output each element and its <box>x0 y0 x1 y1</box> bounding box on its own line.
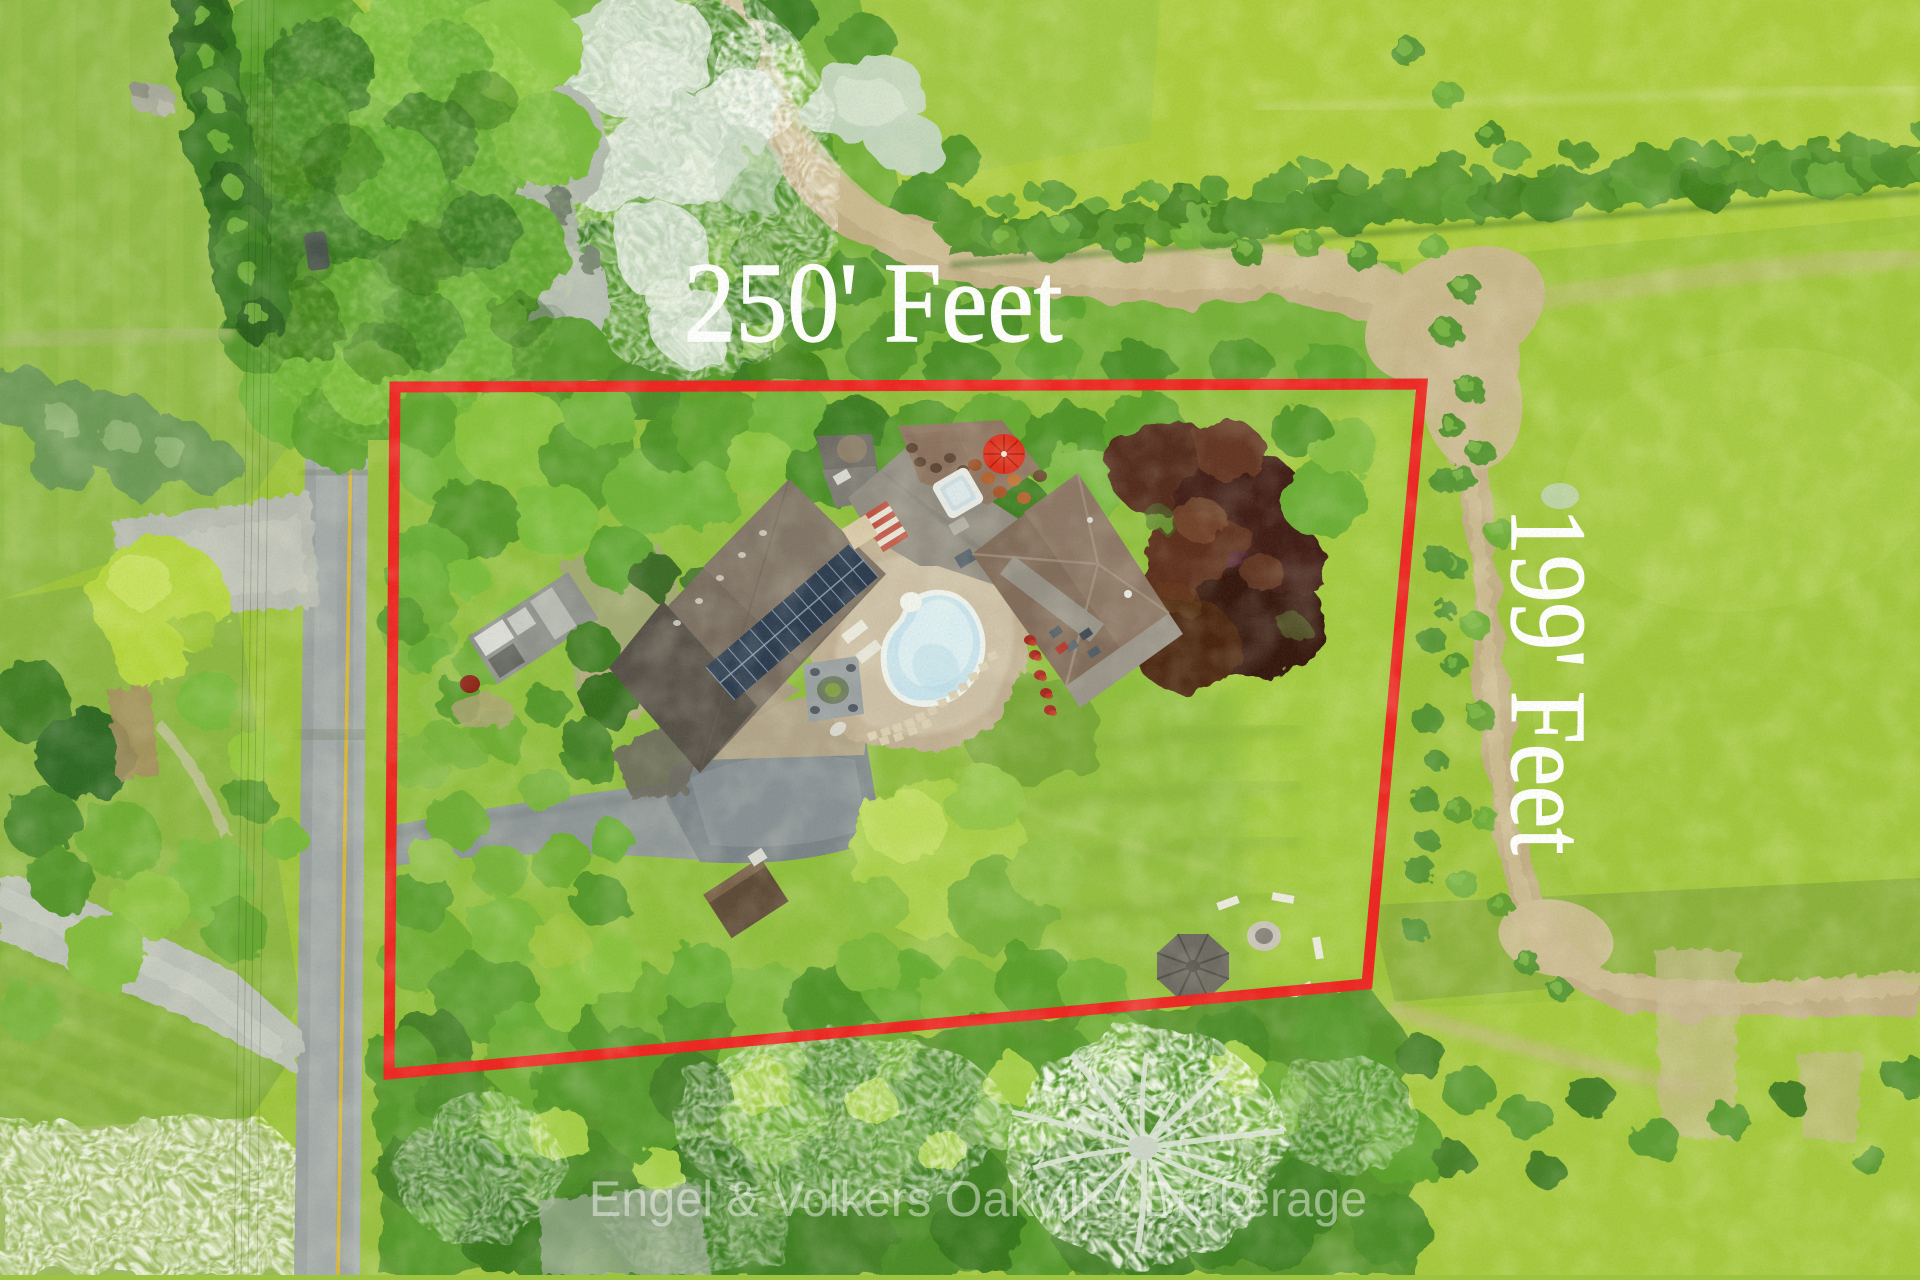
svg-text:Engel & Volkers Oakville| Brok: Engel & Volkers Oakville| Brokerage <box>589 1171 1367 1227</box>
